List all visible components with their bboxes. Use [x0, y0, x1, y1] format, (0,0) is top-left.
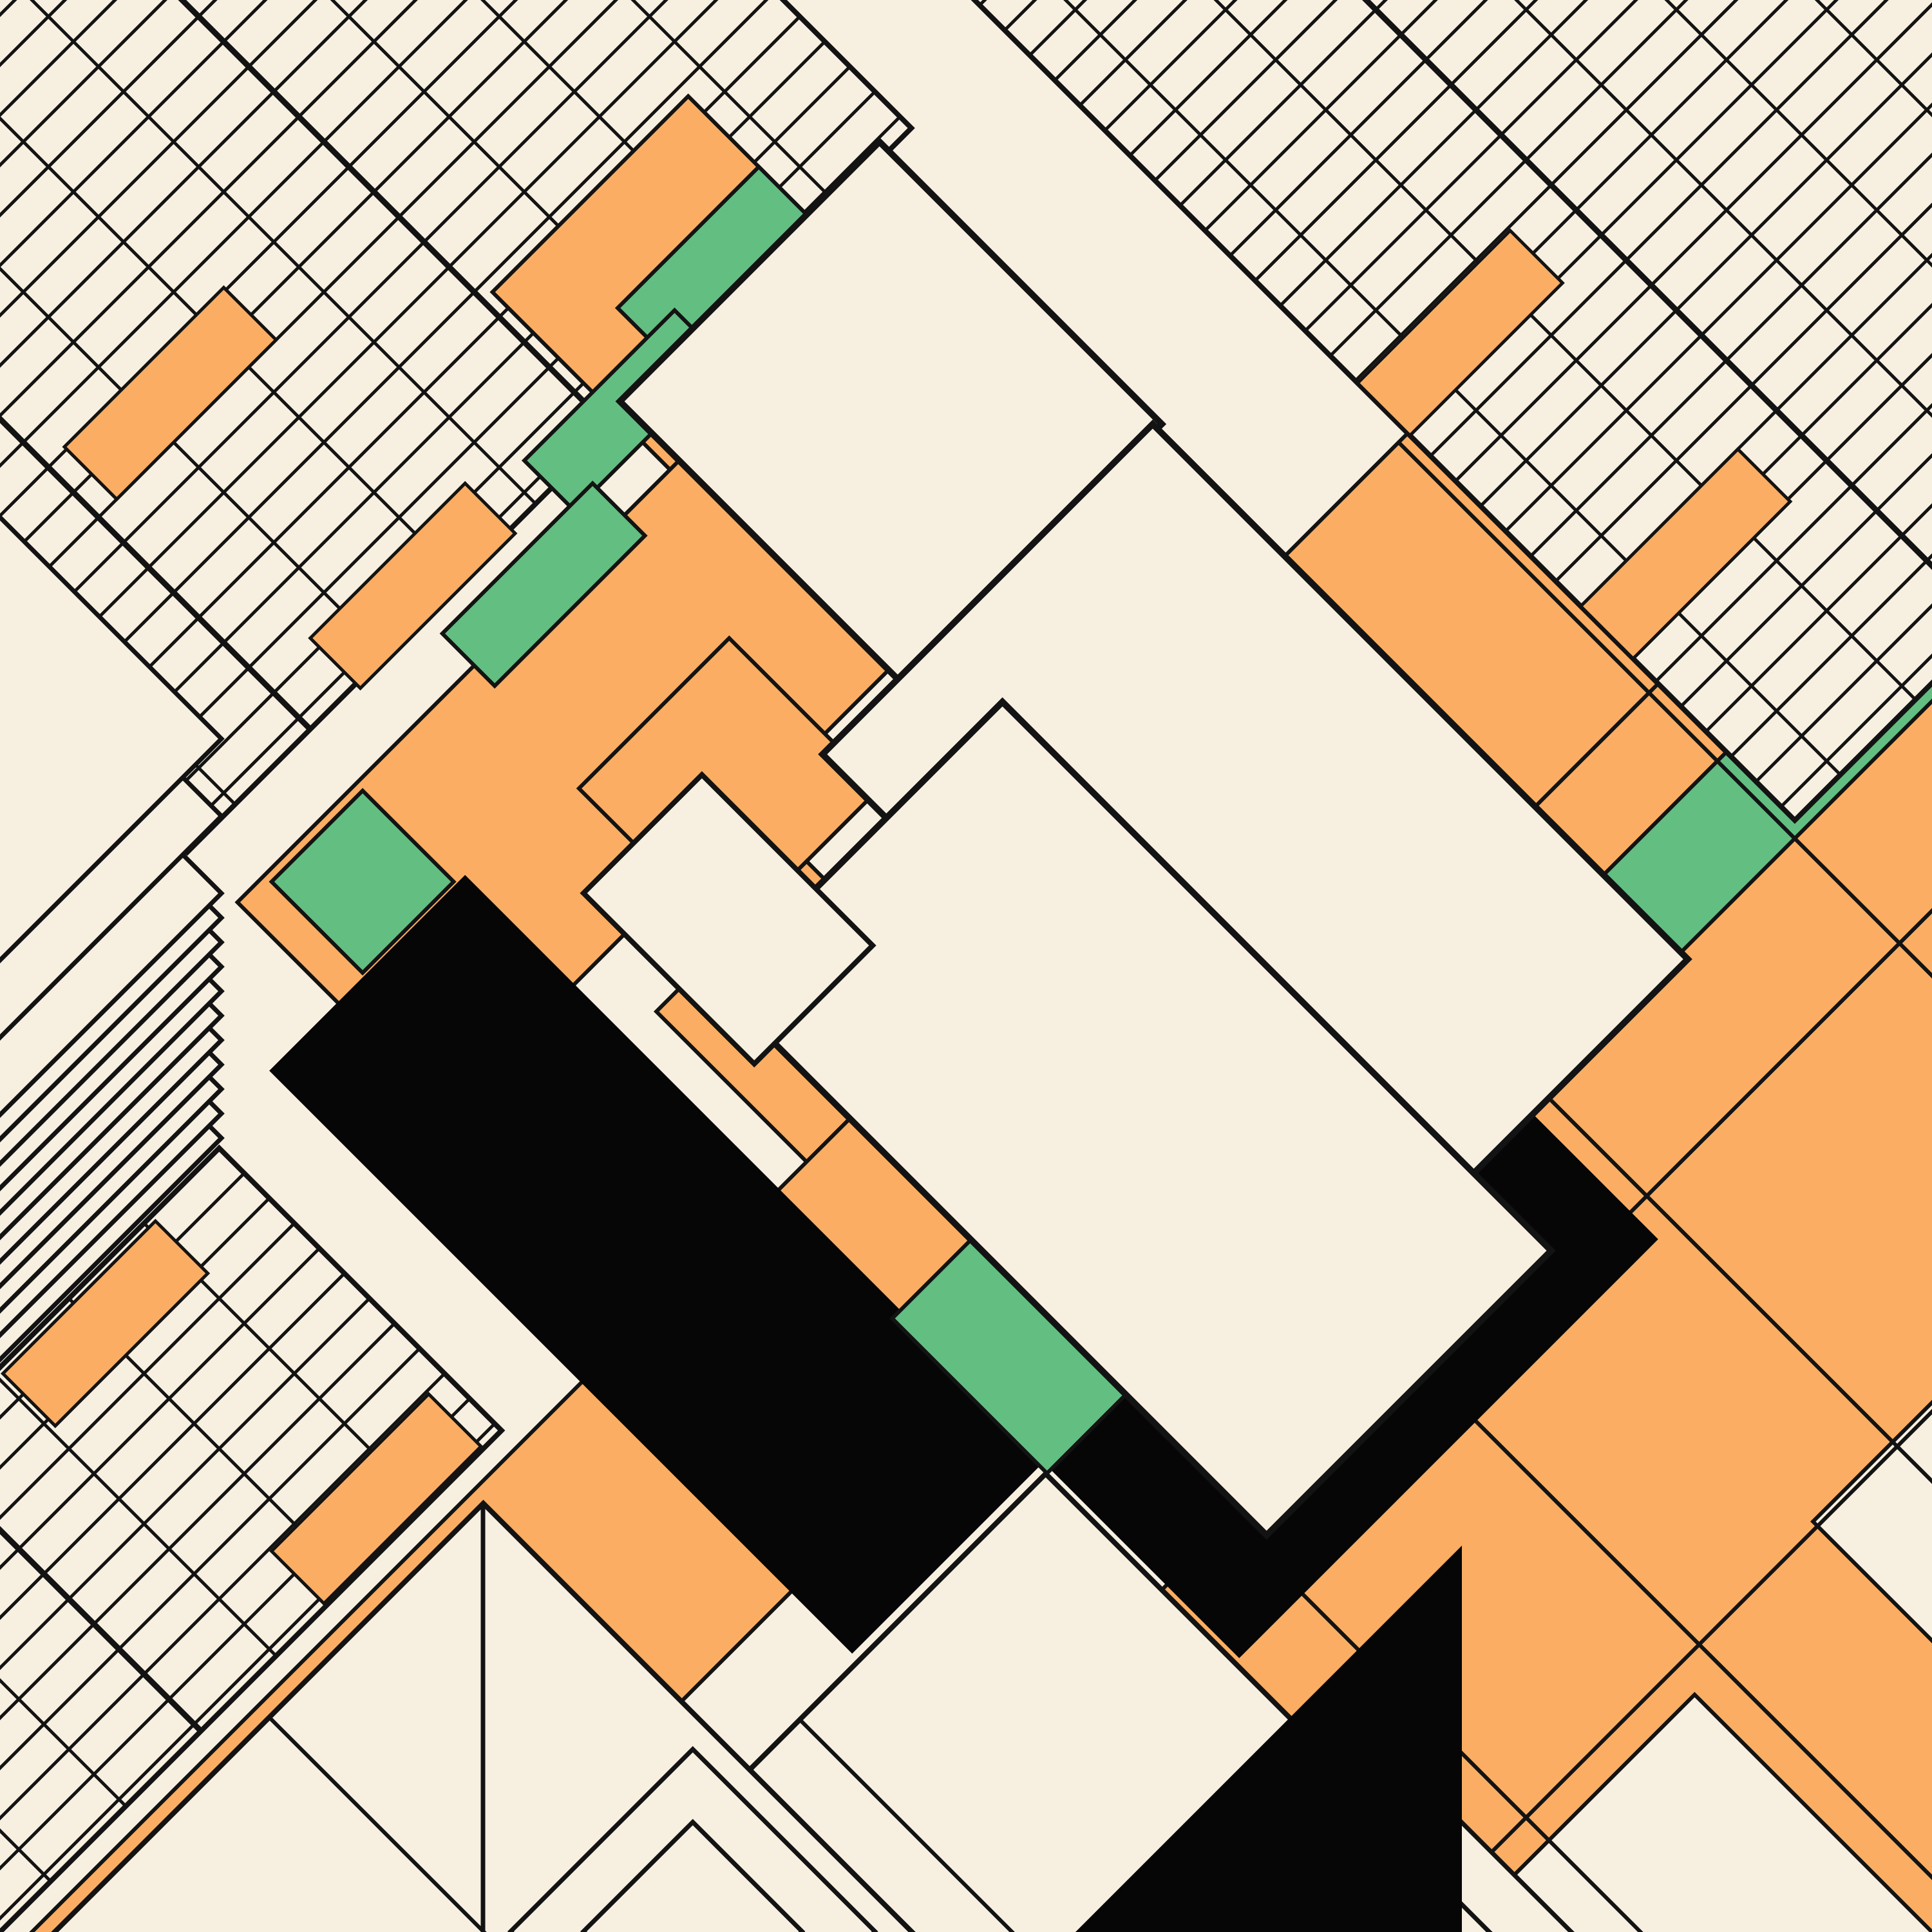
artwork-frame: [0, 0, 1932, 1932]
artwork-canvas: [0, 0, 1932, 1932]
